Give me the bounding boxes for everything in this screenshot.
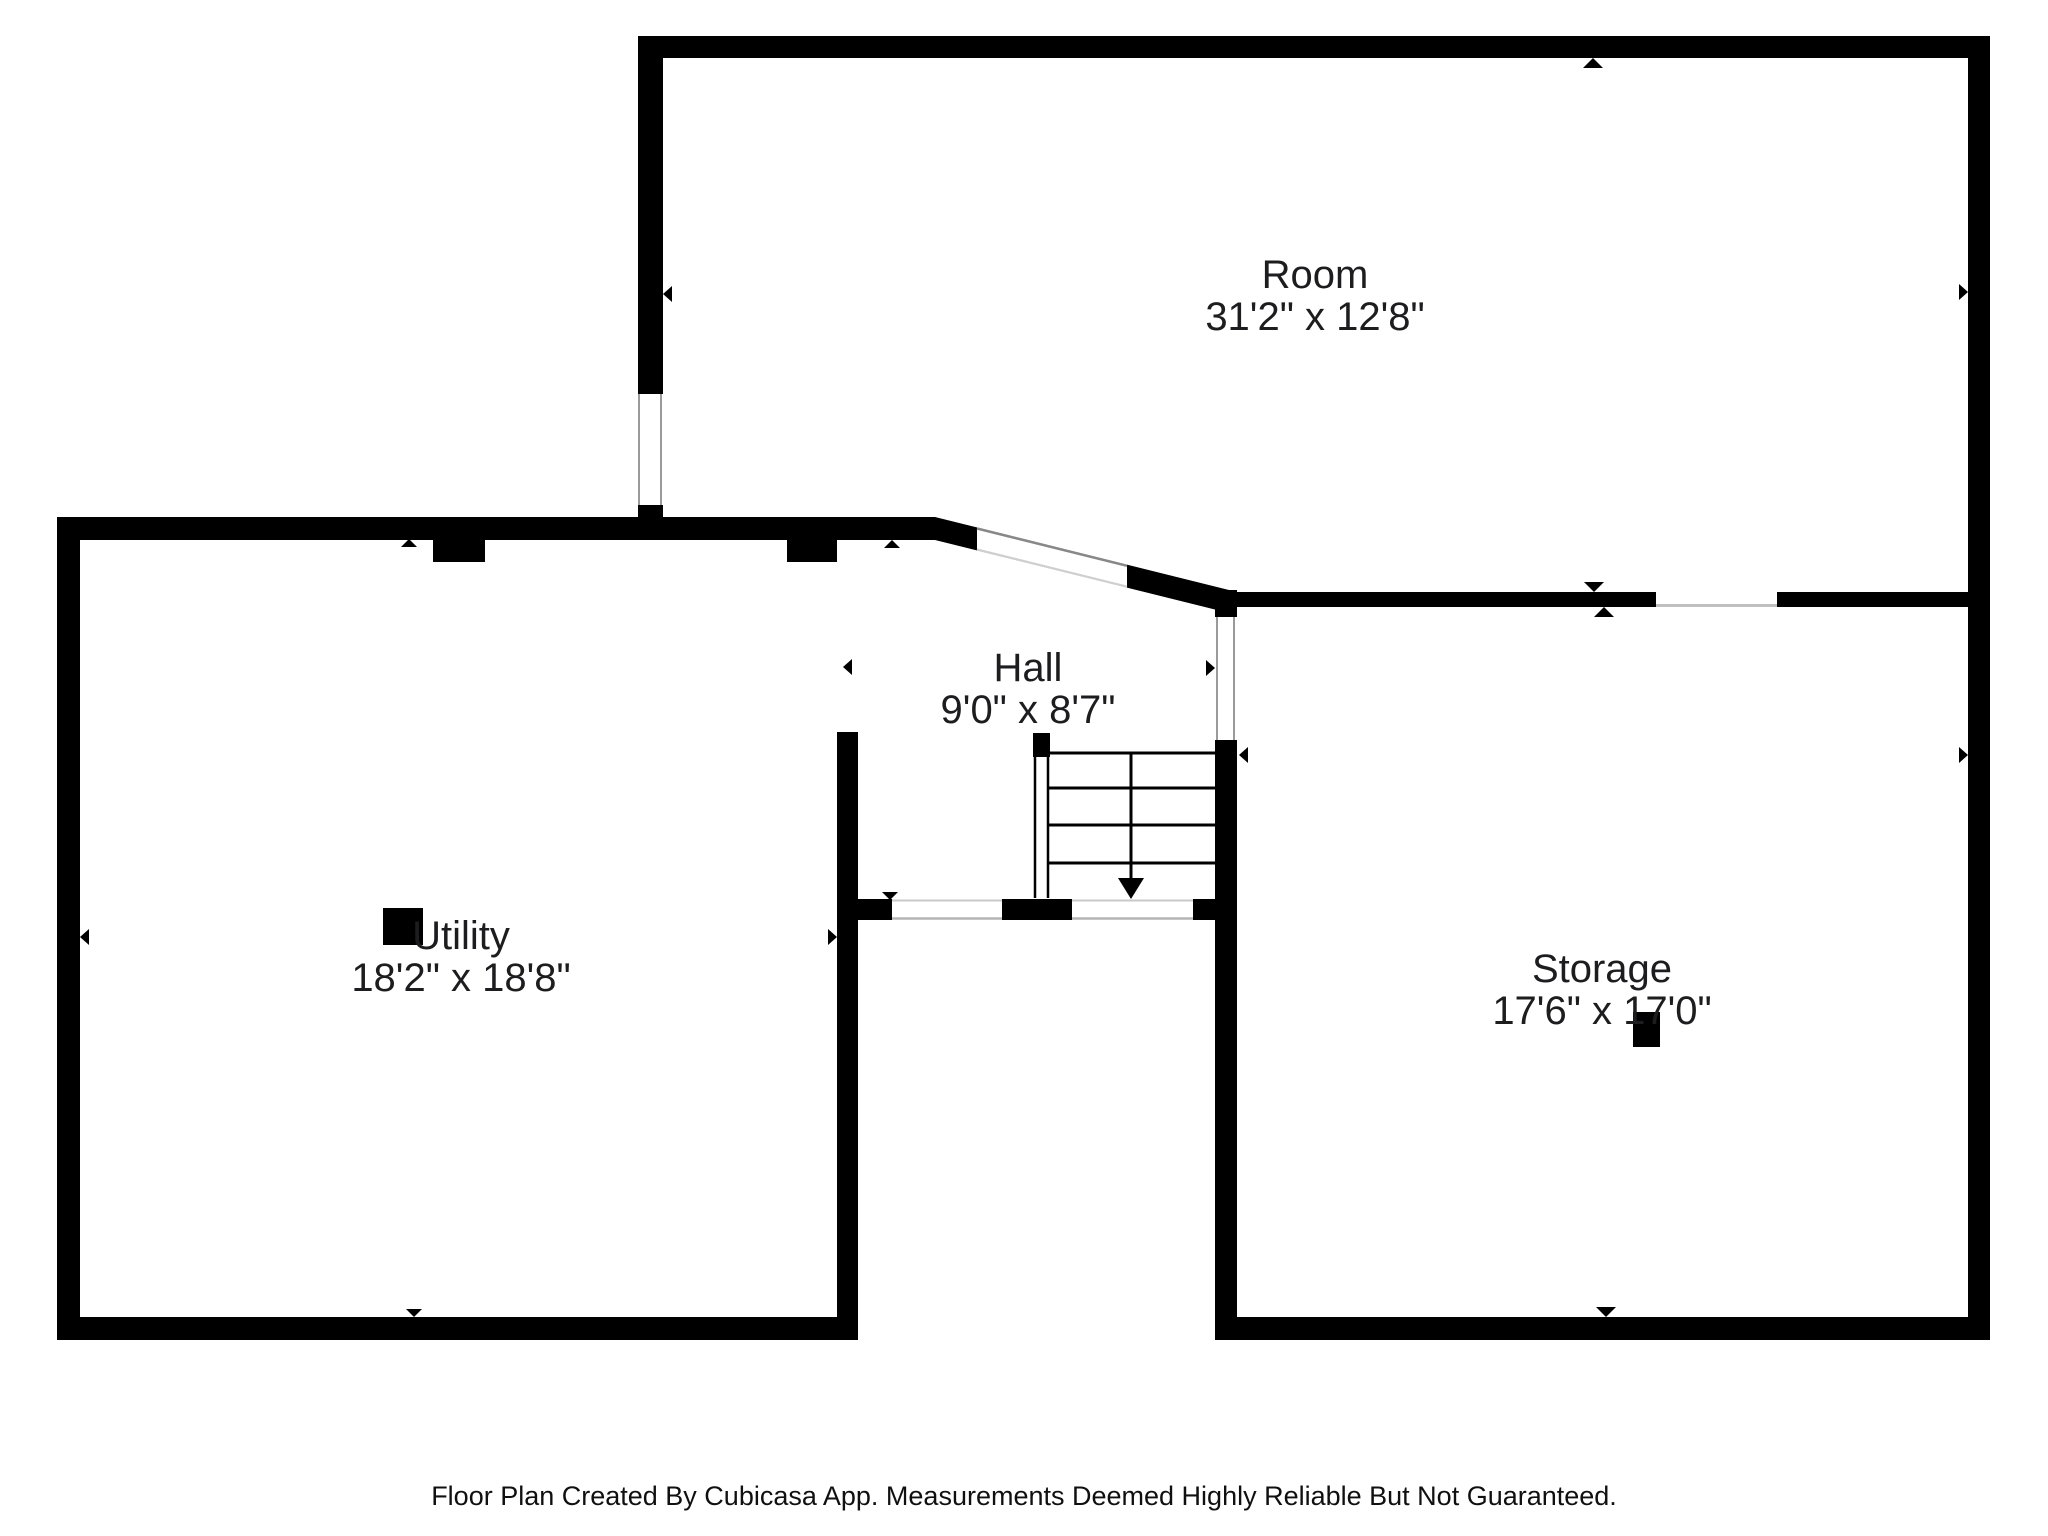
arrow-hall-right-icon bbox=[1206, 660, 1215, 676]
room-dimensions: 9'0" x 8'7" bbox=[941, 689, 1116, 731]
wall-storage-top-left bbox=[1237, 592, 1656, 607]
wall-utility-hall-top bbox=[57, 517, 935, 540]
wall-storage-bottom bbox=[1215, 1317, 1990, 1340]
wall-utility-left bbox=[57, 517, 80, 1340]
arrow-room-left-icon bbox=[663, 286, 672, 302]
room-label-room: Room 31'2" x 12'8" bbox=[1205, 254, 1424, 338]
fixtures bbox=[383, 908, 1660, 1047]
arrow-storage-down-icon bbox=[1596, 1307, 1616, 1317]
footer-disclaimer: Floor Plan Created By Cubicasa App. Meas… bbox=[0, 1481, 2048, 1511]
arrow-room-down-icon bbox=[1584, 582, 1604, 592]
wall-room-left-upper bbox=[638, 36, 663, 394]
room-name: Utility bbox=[351, 915, 570, 957]
door-leaf-utility-hall bbox=[787, 537, 837, 562]
room-label-hall: Hall 9'0" x 8'7" bbox=[941, 647, 1116, 731]
arrow-utility-down-icon bbox=[406, 1309, 422, 1317]
stairs bbox=[1033, 733, 1215, 899]
arrow-utility-up-icon bbox=[401, 539, 417, 547]
arrow-room-right-icon bbox=[1959, 284, 1968, 300]
wall-utility-hall-divider bbox=[837, 732, 858, 1340]
windows-openings bbox=[639, 394, 1777, 919]
floor-plan-page: Room 31'2" x 12'8" Hall 9'0" x 8'7" Util… bbox=[0, 0, 2048, 1536]
wall-hall-bottom-stub bbox=[837, 899, 892, 920]
arrow-hall-up-icon bbox=[884, 540, 900, 548]
room-dimensions: 18'2" x 18'8" bbox=[351, 957, 570, 999]
arrow-hall-down-icon bbox=[882, 892, 898, 900]
room-dimensions: 31'2" x 12'8" bbox=[1205, 296, 1424, 338]
room-label-storage: Storage 17'6" x 17'0" bbox=[1492, 948, 1711, 1032]
room-name: Storage bbox=[1492, 948, 1711, 990]
opening-angled-gap bbox=[977, 527, 1127, 587]
stairs-direction-arrowhead bbox=[1118, 878, 1144, 899]
arrow-storage-up-icon bbox=[1594, 607, 1614, 617]
wall-storage-top-right bbox=[1777, 592, 1990, 607]
room-name: Hall bbox=[941, 647, 1116, 689]
door-leaf-utility-left bbox=[433, 537, 485, 562]
wall-right-exterior bbox=[1968, 36, 1990, 1340]
arrow-storage-left-icon bbox=[1239, 747, 1248, 763]
floor-plan-drawing bbox=[0, 0, 2048, 1536]
doors bbox=[433, 537, 837, 562]
wall-storage-corner-block bbox=[1215, 590, 1237, 617]
wall-room-top bbox=[638, 36, 1990, 58]
arrow-storage-right-icon bbox=[1959, 747, 1968, 763]
room-name: Room bbox=[1205, 254, 1424, 296]
wall-storage-left bbox=[1215, 740, 1237, 1340]
arrow-utility-left-icon bbox=[80, 929, 89, 945]
room-dimensions: 17'6" x 17'0" bbox=[1492, 990, 1711, 1032]
wall-hall-bottom-block bbox=[1002, 899, 1072, 920]
arrow-room-up-icon bbox=[1583, 58, 1603, 68]
arrow-utility-right-icon bbox=[828, 929, 837, 945]
wall-utility-bottom bbox=[57, 1317, 858, 1340]
arrow-hall-left-icon bbox=[843, 659, 852, 675]
room-label-utility: Utility 18'2" x 18'8" bbox=[351, 915, 570, 999]
